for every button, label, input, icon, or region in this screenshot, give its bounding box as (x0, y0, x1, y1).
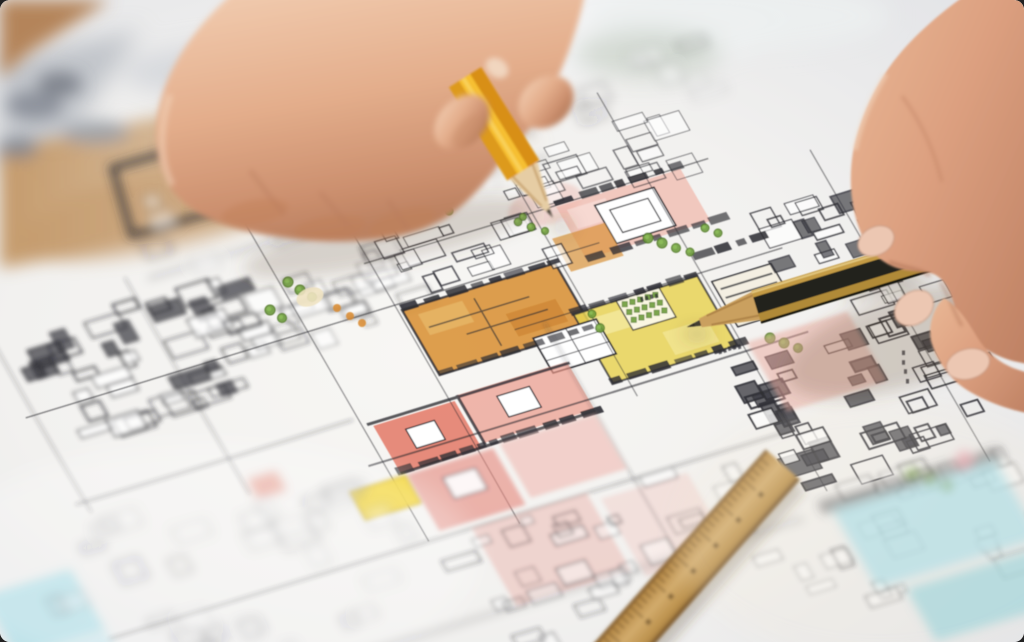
tree-highlight (687, 249, 691, 253)
garden-grid-dot (642, 305, 647, 310)
orange-dot (346, 312, 354, 320)
orange-dot (333, 304, 341, 312)
garden-grid-dot (622, 302, 627, 307)
tree-highlight (645, 235, 650, 240)
tree-highlight (715, 230, 719, 234)
garden-grid-dot (627, 309, 632, 314)
garden-grid-dot (639, 315, 644, 320)
tree-highlight (702, 225, 706, 229)
garden-grid-dot (630, 299, 635, 304)
tree-highlight (589, 311, 593, 315)
ink-smudge (38, 72, 82, 96)
tree-highlight (659, 240, 664, 245)
garden-grid-dot (657, 300, 662, 305)
tree-highlight (542, 228, 545, 231)
pencil-tip-shadow (550, 221, 574, 231)
ink-smudge (61, 120, 129, 144)
garden-grid-dot (646, 313, 651, 318)
tree-highlight (597, 325, 601, 329)
tree-highlight (673, 245, 677, 249)
garden-grid-dot (650, 302, 655, 307)
tree-highlight (285, 279, 290, 284)
garden-grid-dot (631, 317, 636, 322)
orange-dot (358, 319, 366, 327)
site-plan (0, 0, 1024, 642)
photo-architects-plan (0, 0, 1024, 642)
pencil-tip-shadow (683, 329, 711, 339)
tree-highlight (267, 307, 272, 312)
tree-highlight (528, 224, 532, 228)
garden-grid-dot (662, 308, 667, 313)
tree-highlight (297, 287, 302, 292)
tree-highlight (279, 315, 283, 319)
garden-grid-dot (634, 307, 639, 312)
garden-grid-dot (654, 310, 659, 315)
